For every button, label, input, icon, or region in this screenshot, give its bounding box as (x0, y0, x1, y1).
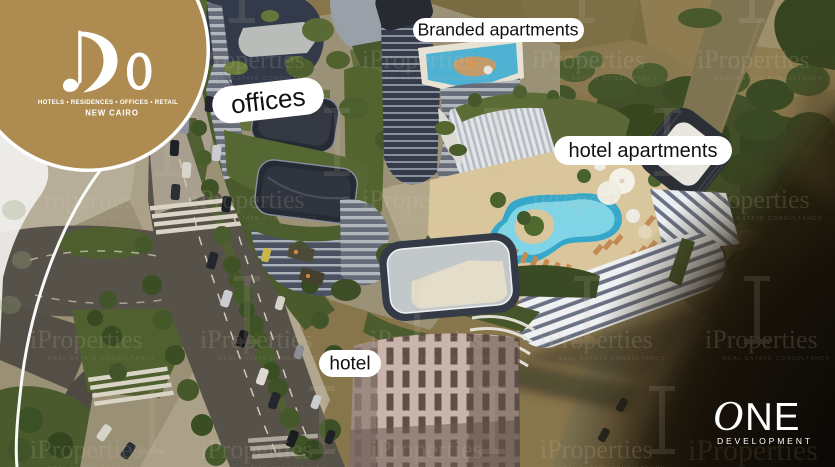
svg-text:HOTELS • RESIDENCES • OFFICES: HOTELS • RESIDENCES • OFFICES • RETAIL (38, 99, 178, 106)
svg-text:iProperties: iProperties (192, 185, 305, 214)
svg-text:iProperties: iProperties (697, 185, 810, 214)
svg-text:NEW CAIRO: NEW CAIRO (85, 109, 139, 118)
svg-text:hotel apartments: hotel apartments (569, 140, 718, 162)
svg-text:REAL ESTATE CONSULTANCY: REAL ESTATE CONSULTANCY (723, 356, 830, 362)
svg-text:iProperties: iProperties (200, 435, 313, 464)
svg-text:REAL ESTATE CONSULTANCY: REAL ESTATE CONSULTANCY (715, 76, 822, 82)
svg-text:iProperties: iProperties (362, 185, 475, 214)
svg-text:REAL ESTATE CONSULTANCY: REAL ESTATE CONSULTANCY (550, 76, 657, 82)
svg-text:DEVELOPMENT: DEVELOPMENT (717, 436, 813, 446)
svg-text:hotel: hotel (329, 354, 370, 375)
svg-text:REAL ESTATE CONSULTANCY: REAL ESTATE CONSULTANCY (388, 356, 495, 362)
svg-text:REAL ESTATE CONSULTANCY: REAL ESTATE CONSULTANCY (558, 356, 665, 362)
svg-text:O: O (713, 394, 743, 440)
svg-text:iProperties: iProperties (697, 45, 810, 74)
svg-text:REAL ESTATE CONSULTANCY: REAL ESTATE CONSULTANCY (218, 356, 325, 362)
svg-text:REAL ESTATE CONSULTANCY: REAL ESTATE CONSULTANCY (40, 216, 147, 222)
svg-text:REAL ESTATE CONSULTANCY: REAL ESTATE CONSULTANCY (210, 216, 317, 222)
svg-text:iProperties: iProperties (532, 45, 645, 74)
svg-text:REAL ESTATE CONSULTANCY: REAL ESTATE CONSULTANCY (380, 216, 487, 222)
svg-text:REAL ESTATE CONSULTANCY: REAL ESTATE CONSULTANCY (715, 216, 822, 222)
svg-text:iProperties: iProperties (30, 325, 143, 354)
svg-text:iProperties: iProperties (532, 185, 645, 214)
svg-text:REAL ESTATE CONSULTANCY: REAL ESTATE CONSULTANCY (48, 356, 155, 362)
svg-text:Branded apartments: Branded apartments (417, 20, 578, 40)
svg-text:REAL ESTATE CONSULTANCY: REAL ESTATE CONSULTANCY (550, 216, 657, 222)
svg-text:REAL ESTATE CONSULTANCY: REAL ESTATE CONSULTANCY (380, 76, 487, 82)
svg-text:iProperties: iProperties (540, 435, 653, 464)
svg-text:iProperties: iProperties (370, 435, 483, 464)
svg-text:iProperties: iProperties (30, 435, 143, 464)
svg-text:NE: NE (745, 396, 800, 439)
svg-text:iProperties: iProperties (362, 45, 475, 74)
